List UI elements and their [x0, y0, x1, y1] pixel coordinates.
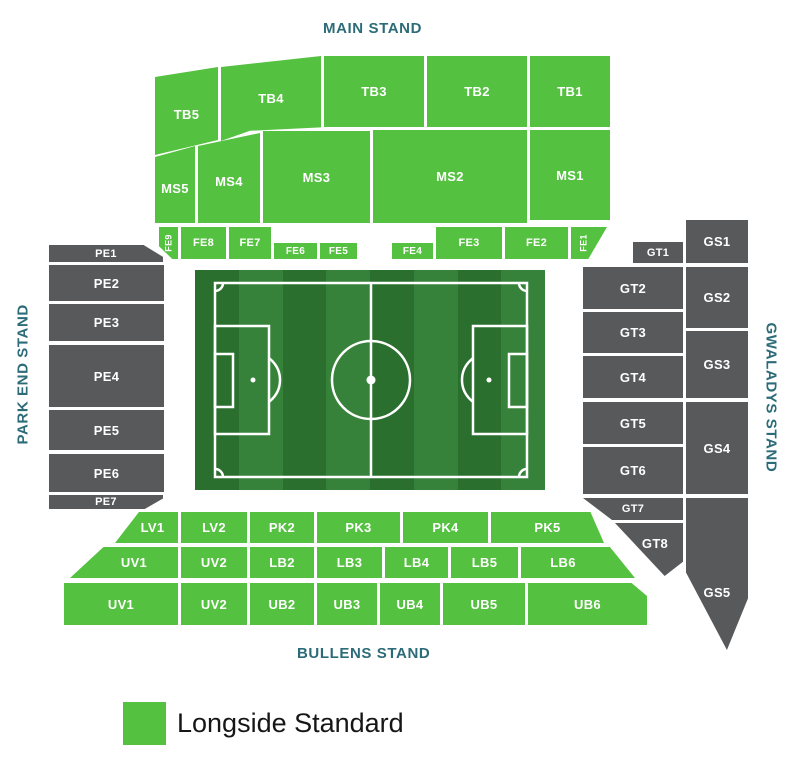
gwaladys-stand-title: GWALADYS STAND: [763, 323, 780, 449]
section-fe8[interactable]: FE8: [181, 227, 226, 259]
section-fe5[interactable]: FE5: [320, 243, 357, 259]
section-pk3[interactable]: PK3: [317, 512, 400, 543]
section-pe4: PE4: [49, 345, 164, 407]
section-gt7: GT7: [583, 498, 683, 520]
section-tb5[interactable]: TB5: [155, 67, 218, 155]
section-gt3: GT3: [583, 312, 683, 353]
park-end-stand-title: PARK END STAND: [15, 323, 32, 445]
section-lb3[interactable]: LB3: [317, 547, 382, 578]
section-fe6[interactable]: FE6: [274, 243, 317, 259]
bullens-stand-title: BULLENS STAND: [297, 645, 430, 662]
section-gt4: GT4: [583, 356, 683, 398]
section-fe7[interactable]: FE7: [229, 227, 271, 259]
section-ub3[interactable]: UB3: [317, 583, 377, 625]
section-lb6[interactable]: LB6: [521, 547, 635, 578]
section-fe2[interactable]: FE2: [505, 227, 568, 259]
section-fe9[interactable]: FE9: [159, 227, 178, 259]
section-gt1: GT1: [633, 242, 683, 263]
section-ub5[interactable]: UB5: [443, 583, 525, 625]
section-ub4[interactable]: UB4: [380, 583, 440, 625]
section-pe7: PE7: [49, 495, 163, 509]
section-ms1[interactable]: MS1: [530, 130, 610, 220]
section-ub6[interactable]: UB6: [528, 583, 647, 625]
section-gs5: GS5: [686, 498, 748, 650]
section-tb2[interactable]: TB2: [427, 56, 527, 127]
section-fe4[interactable]: FE4: [392, 243, 433, 259]
section-uv1-upper[interactable]: UV1: [70, 547, 178, 578]
legend: Longside Standard: [123, 702, 404, 745]
stadium-seating-map: MAIN STAND PARK END STAND GWALADYS STAND…: [0, 0, 798, 766]
section-ms2[interactable]: MS2: [373, 130, 527, 223]
section-ms3[interactable]: MS3: [263, 131, 370, 223]
section-gs4: GS4: [686, 402, 748, 494]
section-uv1-lower[interactable]: UV1: [64, 583, 178, 625]
left-penalty-spot: [251, 378, 256, 383]
section-ub2[interactable]: UB2: [250, 583, 314, 625]
section-pe1: PE1: [49, 245, 163, 262]
section-pk2[interactable]: PK2: [250, 512, 314, 543]
section-lb2[interactable]: LB2: [250, 547, 314, 578]
section-pe6: PE6: [49, 454, 164, 492]
section-gs3: GS3: [686, 331, 748, 398]
section-fe3[interactable]: FE3: [436, 227, 502, 259]
section-pe5: PE5: [49, 410, 164, 450]
section-tb3[interactable]: TB3: [324, 56, 424, 127]
section-lv1[interactable]: LV1: [115, 512, 178, 543]
section-lb4[interactable]: LB4: [385, 547, 448, 578]
section-gt6: GT6: [583, 447, 683, 494]
legend-swatch-longside-standard: [123, 702, 166, 745]
center-spot: [367, 376, 376, 385]
section-pk5[interactable]: PK5: [491, 512, 604, 543]
section-gt2: GT2: [583, 267, 683, 309]
section-fe1[interactable]: FE1: [571, 227, 607, 259]
section-gs1: GS1: [686, 220, 748, 263]
section-gs2: GS2: [686, 267, 748, 328]
right-penalty-spot: [487, 378, 492, 383]
section-lv2[interactable]: LV2: [181, 512, 247, 543]
section-ms5[interactable]: MS5: [155, 146, 195, 223]
section-uv2-upper[interactable]: UV2: [181, 547, 247, 578]
section-pe3: PE3: [49, 304, 164, 341]
section-tb1[interactable]: TB1: [530, 56, 610, 127]
section-ms4[interactable]: MS4: [198, 133, 260, 223]
legend-label: Longside Standard: [177, 708, 404, 739]
section-gt5: GT5: [583, 402, 683, 444]
section-tb4[interactable]: TB4: [221, 56, 321, 141]
section-lb5[interactable]: LB5: [451, 547, 518, 578]
main-stand-title: MAIN STAND: [323, 20, 422, 37]
section-pk4[interactable]: PK4: [403, 512, 488, 543]
section-uv2-lower[interactable]: UV2: [181, 583, 247, 625]
football-pitch: [195, 270, 545, 490]
section-pe2: PE2: [49, 265, 164, 301]
